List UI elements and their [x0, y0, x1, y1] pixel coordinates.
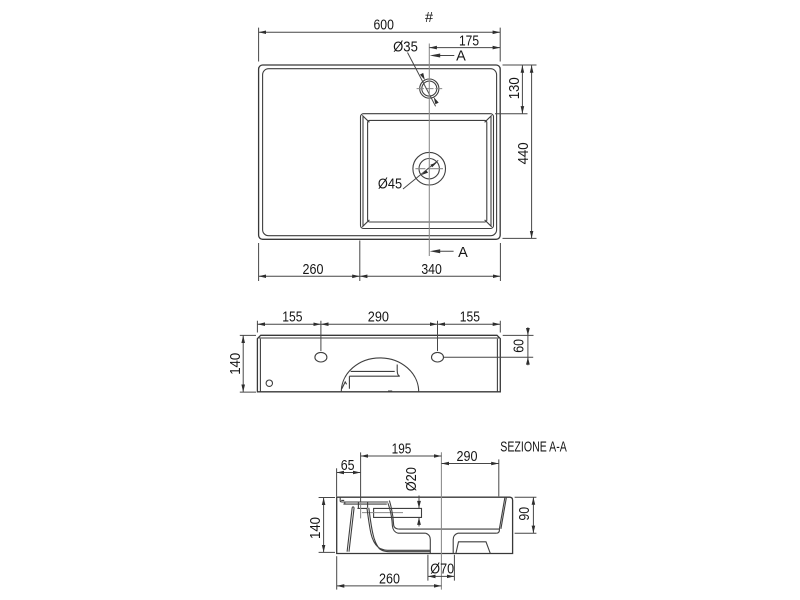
svg-text:#: #: [425, 10, 433, 26]
svg-text:Ø45: Ø45: [378, 177, 402, 193]
svg-text:60: 60: [511, 339, 527, 353]
svg-text:260: 260: [303, 262, 324, 278]
svg-text:175: 175: [459, 33, 479, 49]
svg-text:195: 195: [392, 441, 412, 457]
svg-text:155: 155: [460, 309, 480, 325]
svg-text:290: 290: [368, 309, 389, 325]
svg-text:A: A: [456, 48, 466, 64]
svg-text:SEZIONE A-A: SEZIONE A-A: [500, 440, 567, 456]
svg-text:340: 340: [421, 262, 442, 278]
svg-text:130: 130: [507, 77, 523, 99]
svg-text:290: 290: [457, 449, 478, 465]
svg-text:Ø35: Ø35: [393, 39, 418, 55]
svg-text:Ø20: Ø20: [404, 467, 420, 491]
svg-text:A: A: [458, 245, 468, 261]
svg-text:90: 90: [517, 507, 533, 521]
svg-text:140: 140: [228, 353, 244, 375]
svg-text:155: 155: [282, 309, 302, 325]
svg-text:260: 260: [379, 571, 400, 587]
svg-text:600: 600: [374, 17, 394, 33]
svg-text:Ø70: Ø70: [430, 562, 454, 578]
svg-text:65: 65: [341, 458, 355, 474]
svg-text:440: 440: [516, 142, 532, 164]
svg-text:140: 140: [308, 517, 324, 539]
